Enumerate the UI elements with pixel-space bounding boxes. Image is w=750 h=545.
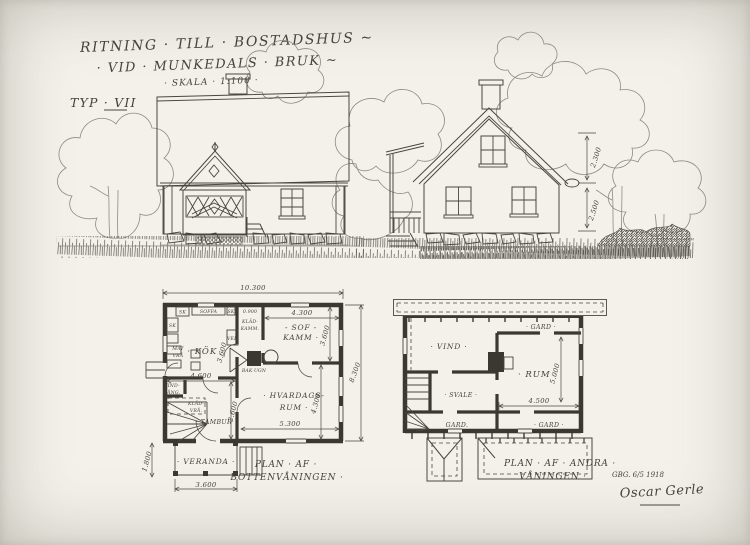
eaves-band [394, 300, 607, 316]
lattice-x-panels [187, 197, 242, 216]
upper-caption-1: PLAN · AF · ANDRA · [503, 459, 616, 469]
gable-chimney-cap [479, 80, 503, 85]
label-rum: · RUM · [518, 370, 558, 380]
projection-ticks [486, 438, 584, 443]
dim-8300: 8.300 [348, 361, 363, 384]
grass-dense-right [420, 246, 690, 259]
architect-signature: Oscar Gerle [619, 482, 704, 501]
elevation-gable-view: 2.300 2.500 [386, 80, 603, 247]
dim-4500: 4.500 [528, 397, 550, 405]
flue-box [504, 357, 513, 369]
dim-4600: 4.600 [190, 372, 212, 380]
stairs-upper [405, 378, 430, 431]
window-sill [479, 164, 507, 167]
tree-right-lower [608, 150, 706, 236]
dim-4300: 4.300 [291, 309, 313, 317]
label-kok: · KÖK · [187, 345, 224, 357]
label-matvra-2: VRÅ [173, 351, 184, 359]
drawing-sheet: RITNING · TILL · BOSTADSHUS ~ · VID · MU… [0, 0, 750, 545]
window-mullions [281, 189, 303, 216]
upper-floor-plan: 4.500 5.000 · VIND · · GARD · · RUM · · … [394, 300, 617, 483]
label-soffa: SOFFA [200, 309, 218, 315]
title-block: RITNING · TILL · BOSTADSHUS ~ · VID · MU… [79, 30, 376, 92]
title-line-1: RITNING · TILL · BOSTADSHUS ~ [79, 30, 374, 56]
window-mullions [512, 187, 536, 214]
baking-oven [247, 351, 261, 366]
label-vind: · VIND · [431, 342, 468, 351]
label-kladkamm-1: KLÄD- [241, 318, 258, 325]
label-matvra-1: MAT [171, 346, 184, 352]
title-line-2: · VID · MUNKEDALS · BRUK ~ [96, 53, 338, 76]
scale-note: · SKALA · 1:100 · [164, 76, 259, 89]
ground-caption-2: BOTTENVÅNINGEN · [229, 471, 343, 483]
architectural-drawing: RITNING · TILL · BOSTADSHUS ~ · VID · MU… [0, 0, 750, 545]
label-hvardags-2: RUM · [279, 403, 308, 412]
dim-5300: 5.300 [280, 420, 301, 428]
gable-window-right [510, 187, 538, 217]
table-2 [191, 362, 200, 370]
grass [56, 236, 694, 259]
window-mullions [446, 187, 471, 215]
dim-2500: 2.500 [587, 199, 602, 223]
date-note: GBG. 6/5 1918 [612, 471, 665, 479]
dim-veranda-3600: 3.600 [196, 481, 217, 489]
ground-floor-plan: 10.300 8.300 4.600 3.600 4.300 3.600 0.9… [140, 284, 364, 492]
cloud-top-right [494, 32, 557, 79]
label-veranda: · VERANDA · [177, 457, 235, 466]
chimney-stack [488, 352, 504, 372]
gable-window-left [444, 187, 473, 218]
label-sk-2: SK [228, 309, 235, 315]
entry-steps-left [146, 362, 165, 378]
dim-10300: 10.300 [240, 284, 266, 292]
dim-2300: 2.300 [589, 146, 604, 170]
label-kamm: KAMM · [282, 333, 319, 342]
gable-dimensions: 2.300 2.500 [565, 133, 603, 231]
porch-roof [386, 143, 424, 155]
label-kladvra-1: KLÄD- [187, 400, 204, 407]
porch-wall [183, 190, 246, 235]
upper-caption-2: VÅNINGEN · [519, 470, 587, 482]
side-window [279, 189, 305, 219]
label-gard-top: · GARD · [526, 324, 556, 331]
ground-caption-1: PLAN · AF · [254, 460, 317, 470]
label-kladkamm-2: KAMM. [240, 326, 260, 332]
gable-rosette [209, 165, 219, 177]
elevation-side-view [157, 74, 349, 245]
label-kladvra-2: VRÅ. [190, 406, 203, 414]
lattice-diamond [209, 199, 220, 214]
entry-porch [386, 143, 424, 247]
eaves-dashed [397, 303, 603, 312]
label-sof: - SOF - [285, 323, 317, 332]
cupboard-4 [167, 334, 178, 343]
label-hvardags-1: · HVARDAGS- [263, 391, 324, 400]
roof-slopes [413, 108, 568, 184]
tree-left-trunk [90, 186, 118, 238]
label-ved: VED [227, 336, 238, 342]
gable-chimney [482, 85, 500, 109]
label-sk-3: SK [169, 323, 176, 329]
porch [180, 142, 250, 245]
type-label: TYP · VII [70, 95, 137, 110]
side-wall [164, 186, 344, 234]
label-bakugn: BAK-UGN [241, 368, 267, 374]
signature-block: GBG. 6/5 1918 Oscar Gerle [612, 471, 704, 505]
window-sill [510, 214, 538, 217]
window-sill [279, 216, 305, 219]
porch-post [390, 154, 393, 233]
window-sill [444, 215, 473, 218]
roof-plane [157, 92, 349, 186]
tree-left [57, 113, 173, 238]
window-mullions [481, 136, 505, 164]
label-gard-br: · GARD · [534, 422, 564, 429]
label-tambur: · TAMBUR [196, 419, 232, 426]
chevron-boards [192, 203, 237, 218]
label-sk-1: SK [179, 310, 186, 316]
gable-upper-window [479, 136, 507, 167]
label-gard-bl: GARD. [446, 422, 469, 429]
porch-railing [390, 212, 421, 233]
dim-0900: 0.900 [243, 309, 257, 315]
label-vindfang-1: VIND- [164, 383, 180, 389]
label-svale: · SVALE · [445, 392, 478, 399]
